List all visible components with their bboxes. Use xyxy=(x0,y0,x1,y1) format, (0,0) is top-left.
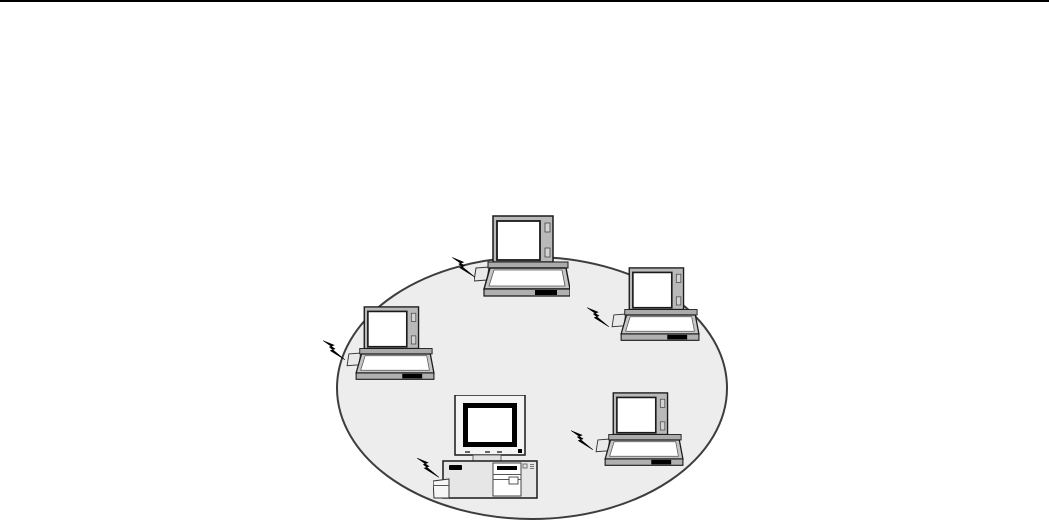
laptop-top xyxy=(474,216,570,296)
wireless-network-diagram xyxy=(0,0,1049,524)
signal-laptop-left xyxy=(323,341,345,360)
page: { "meta": { "description": "Ad-hoc wirel… xyxy=(0,0,1049,524)
